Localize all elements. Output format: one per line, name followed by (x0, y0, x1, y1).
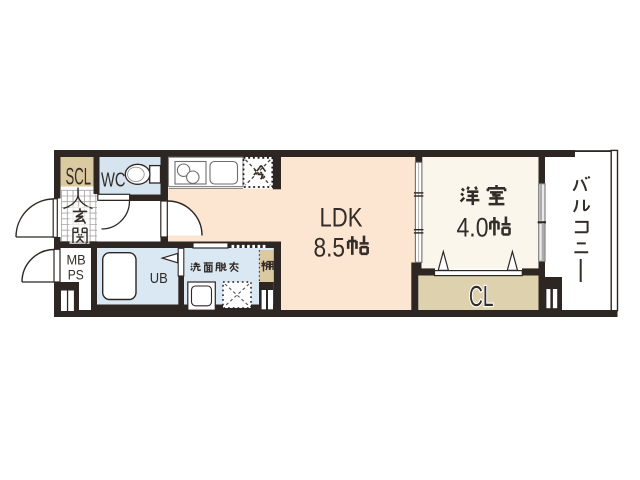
svg-text:MB: MB (67, 252, 86, 267)
svg-text:4.0: 4.0 (457, 213, 489, 243)
svg-text:WC: WC (101, 169, 126, 192)
svg-text:UB: UB (150, 271, 168, 287)
svg-text:PS: PS (68, 267, 84, 282)
svg-text:8.5: 8.5 (314, 232, 346, 262)
svg-text:SCL: SCL (66, 164, 92, 191)
svg-text:CL: CL (469, 281, 494, 313)
svg-text:LDK: LDK (320, 203, 363, 233)
